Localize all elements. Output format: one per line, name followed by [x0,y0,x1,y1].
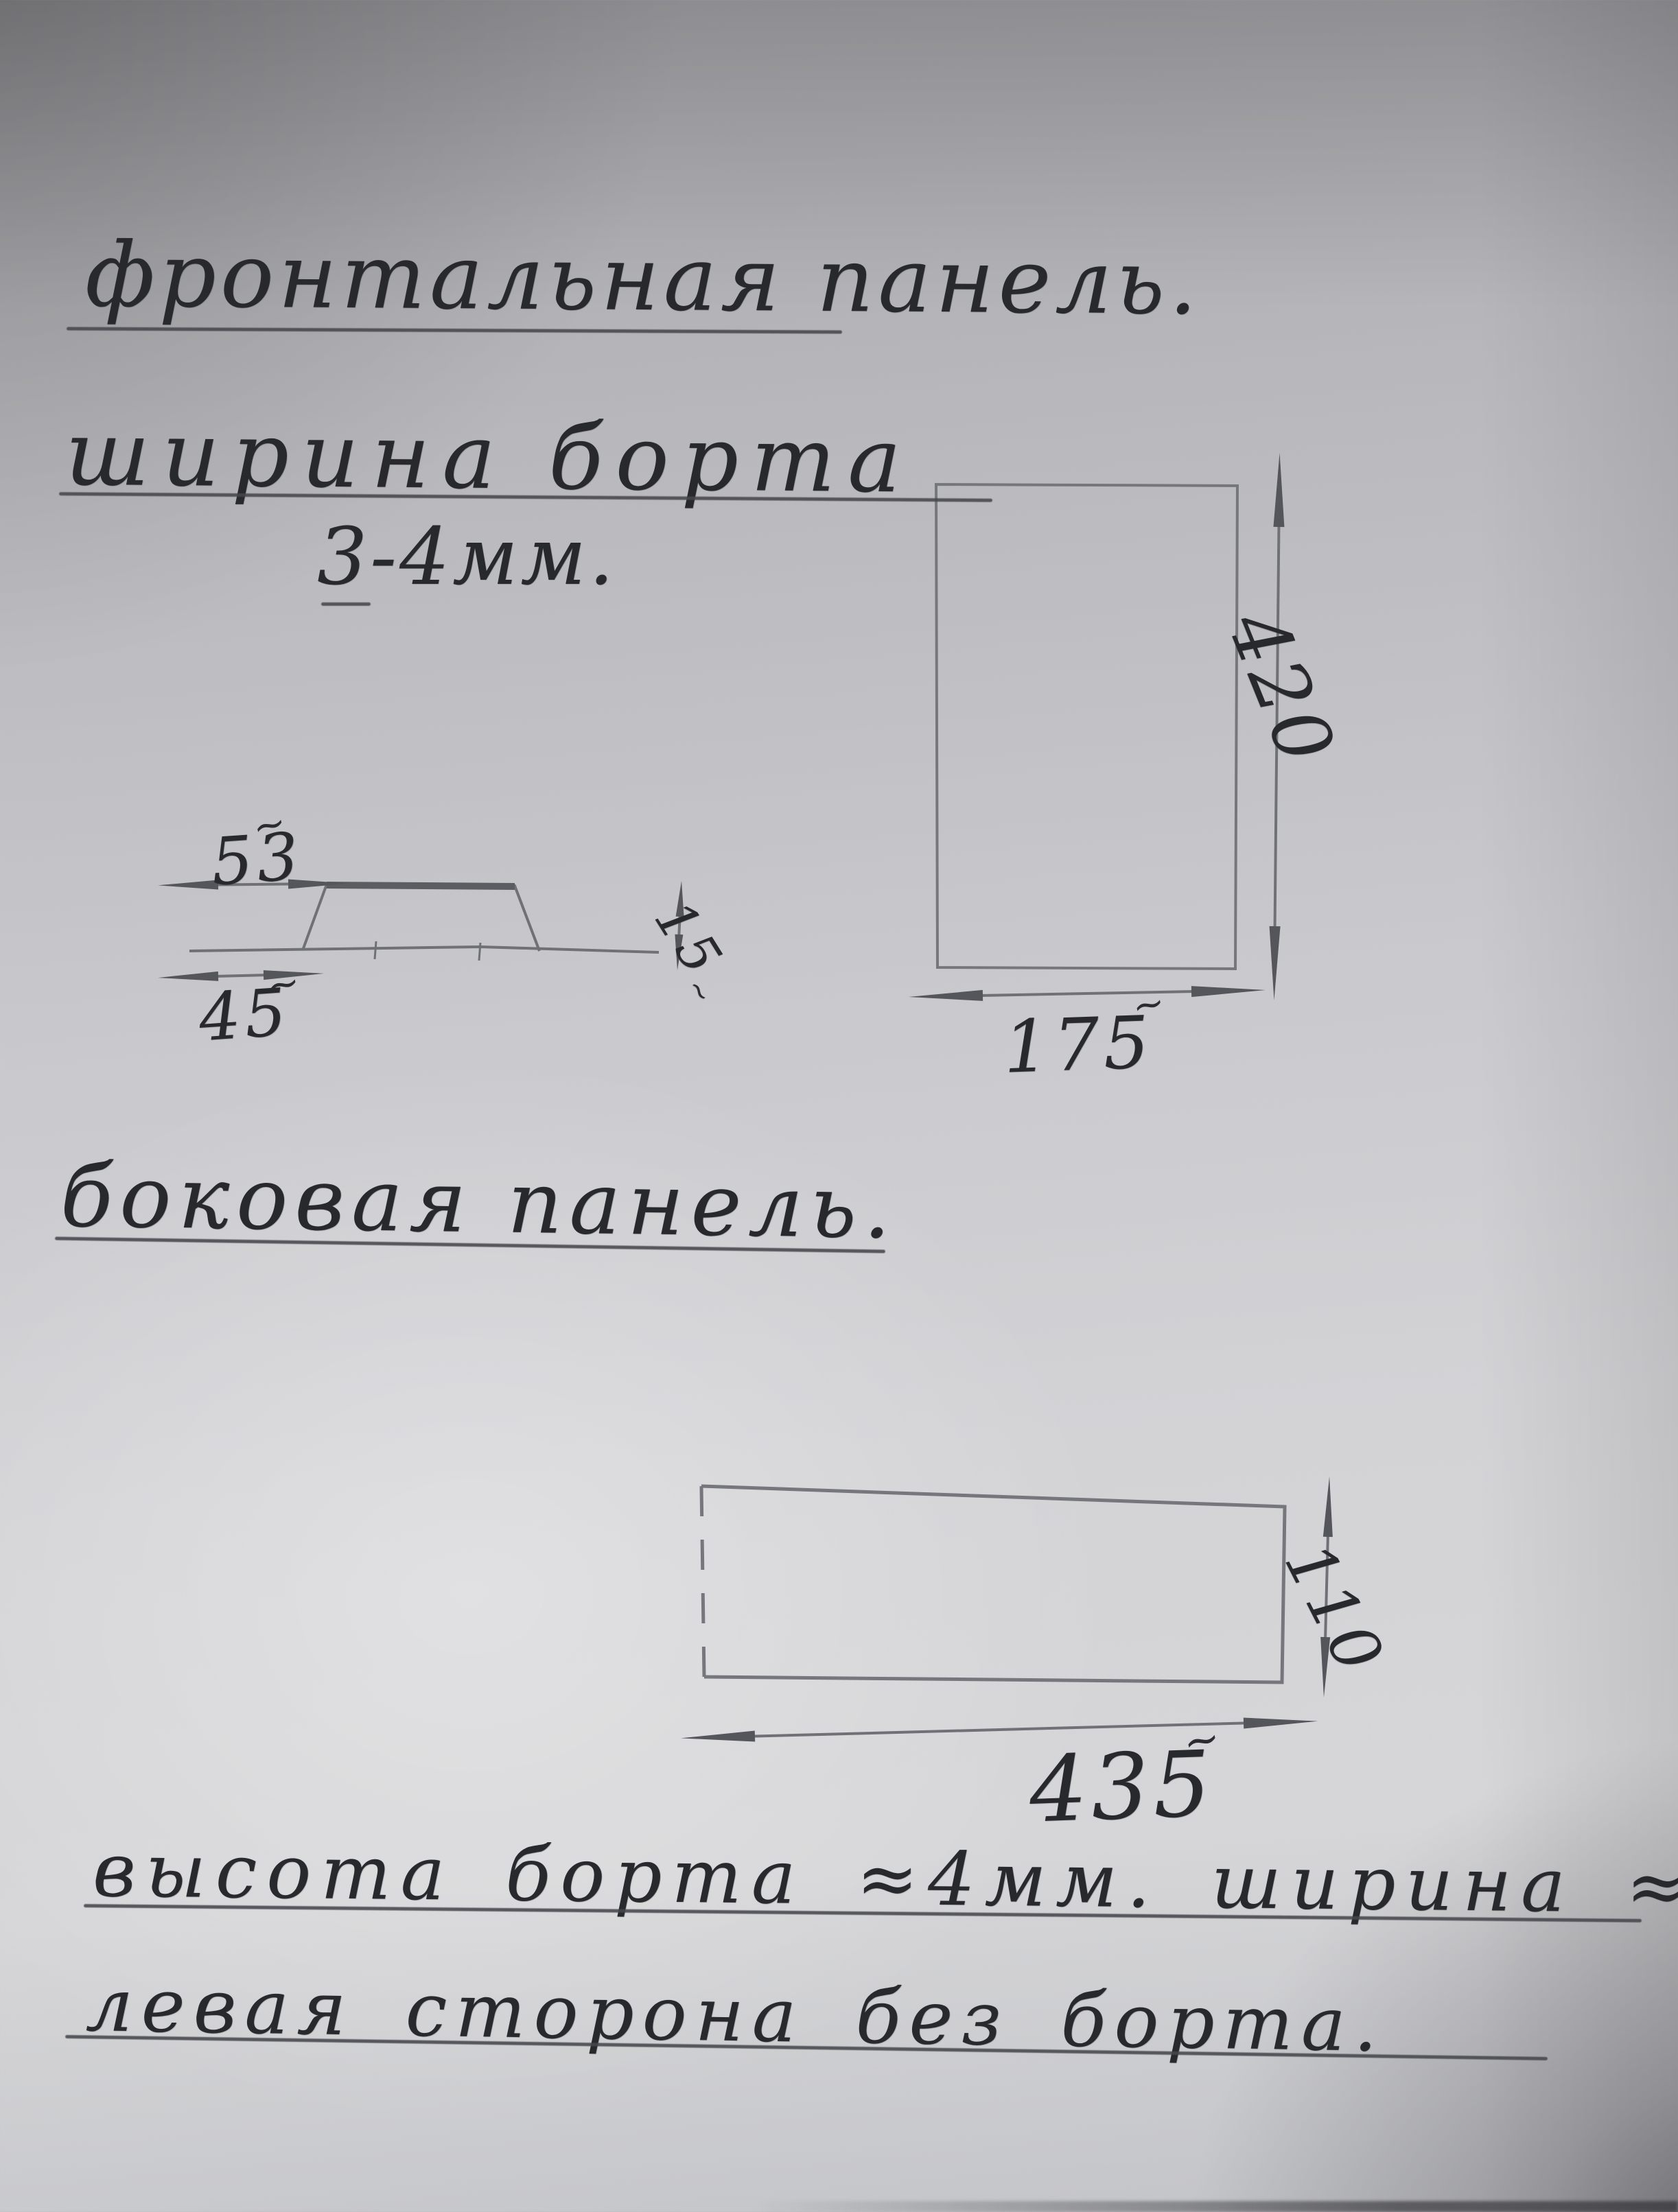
front-panel-width-label: 175 [1002,1000,1155,1090]
profile-trapezoid [303,884,539,951]
front-panel-rectangle [936,484,1237,969]
front-panel-width-arrow [944,991,1230,996]
border-width-note-underline [321,602,371,606]
photographed-notebook-page: { "title": "фронтальная панель.", "marks… [0,0,1678,2212]
page-title: фронтальная панель. [84,222,1201,334]
side-panel-dashed-left-edge [701,1486,704,1677]
dimension-value: 175 [1002,1000,1155,1090]
profile-baseline [189,947,659,952]
side-panel-rectangle [701,1486,1285,1682]
border-width-note: 3-4мм. [317,511,616,603]
profile-trapezoid-top-bold [327,885,515,886]
profile-baseline-tick-1 [375,941,376,959]
profile-baseline-tick-2 [479,943,480,961]
